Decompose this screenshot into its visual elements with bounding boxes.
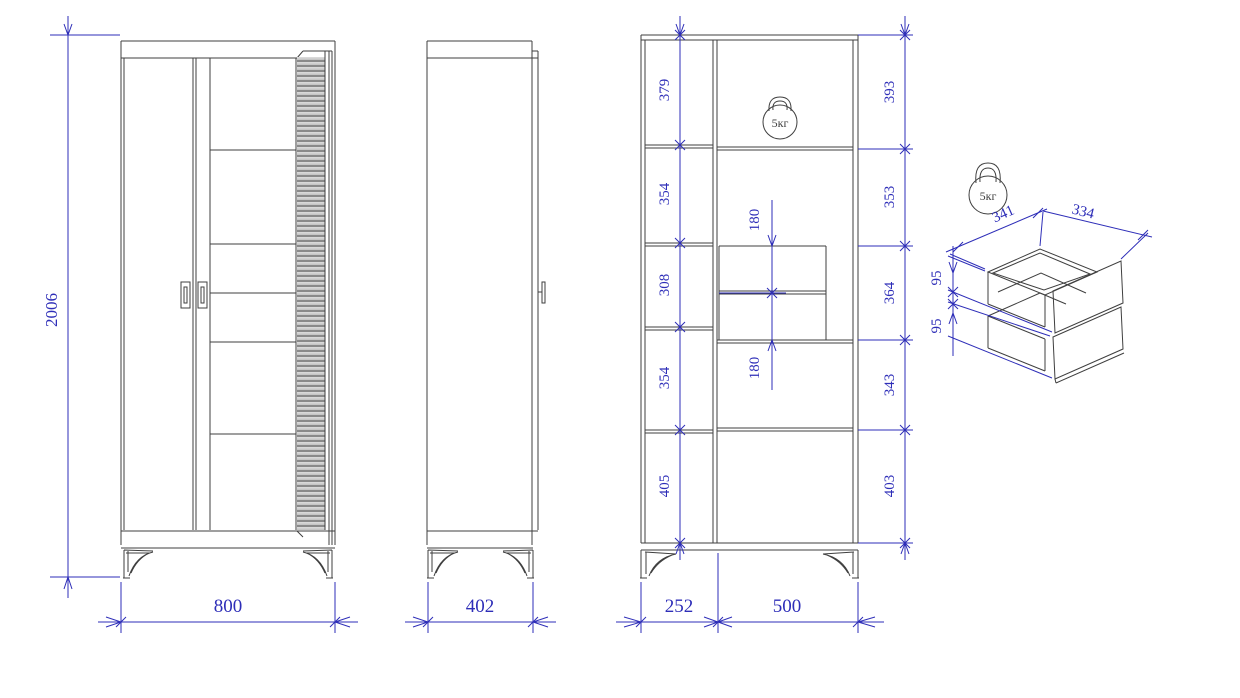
top-panel [121,41,335,58]
dim-internal-right-3: 364 [882,281,898,304]
dim-detail-width: 334 [1070,202,1096,223]
front-left-leg [123,550,153,578]
front-shelf-lines [210,150,296,434]
drawer-block [717,246,853,343]
weight-limit-label: 5кг [772,116,789,130]
side-left-leg [427,550,458,578]
internal-base [641,543,858,550]
dim-internal-left-3: 308 [657,274,673,297]
upper-drawer [988,249,1123,333]
front-view [121,41,335,578]
dim-front-height: 2006 [42,293,61,327]
dim-internal-left-4: 354 [657,366,673,389]
base-band [121,531,335,548]
dim-internal-right-width: 500 [773,596,802,617]
side-outline [427,41,538,545]
side-view [427,41,545,578]
dim-detail-height-1: 95 [929,271,945,286]
dim-detail-height-2: 95 [929,319,945,334]
wardrobe-drawing-canvas: 2006 800 402 [0,0,1240,698]
dim-internal-right-2: 353 [882,186,898,209]
left-column-shelves [645,145,713,433]
side-right-leg [503,550,534,578]
side-door-handle [538,282,545,303]
dim-drawer-height-2: 180 [747,357,763,380]
internal-outline [641,35,858,543]
dim-internal-left-2: 354 [657,182,673,205]
door-handle-right [198,282,207,308]
door-gap [193,58,196,530]
left-side [121,41,124,545]
right-side [332,41,335,545]
dim-internal-left-5: 405 [657,475,673,498]
right-section-shelves [717,147,853,431]
dim-internal-right-1: 393 [882,81,898,104]
technical-drawing-page: 2006 800 402 [0,0,1240,698]
dim-internal-left-1: 379 [657,79,673,102]
dim-detail-depth: 341 [990,202,1017,226]
door-handle-left [181,282,190,308]
front-right-leg [303,550,333,578]
dim-front-width: 800 [214,596,243,617]
slat-band [297,57,325,530]
dim-drawer-height-1: 180 [747,209,763,232]
internal-right-leg [823,550,859,578]
lower-drawer [988,293,1124,383]
internal-divider [713,40,717,543]
internal-view-dimensions [616,16,913,633]
detail-weight-limit-label: 5кг [980,189,997,203]
internal-left-leg [640,550,676,578]
side-base [427,531,538,548]
dim-internal-left-width: 252 [665,596,694,617]
dim-side-depth: 402 [466,596,495,617]
dim-internal-right-4: 343 [882,374,898,397]
dim-internal-right-5: 403 [882,475,898,498]
